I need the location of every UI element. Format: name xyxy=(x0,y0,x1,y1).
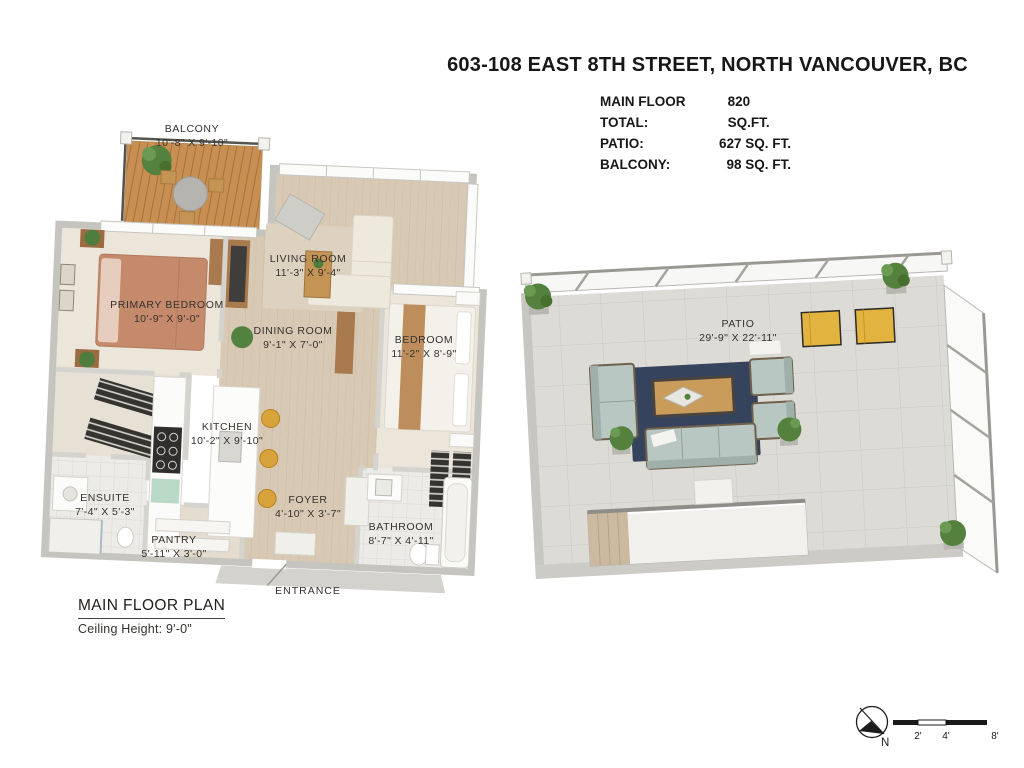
stat-label: MAIN FLOOR TOTAL: xyxy=(600,91,728,133)
balcony-chair xyxy=(208,179,224,193)
stair-cutout xyxy=(587,501,808,566)
room-label-kitchen: KITCHEN 10'-2" X 9'-10" xyxy=(191,420,263,448)
room-label-dining-room: DINING ROOM 9'-1" X 7'-0" xyxy=(254,324,333,352)
room-label-pantry: PANTRY 5'-11" X 3'-0" xyxy=(141,533,206,561)
entrance-door-opening xyxy=(252,559,286,569)
wall-art xyxy=(59,290,74,311)
yellow-chair xyxy=(801,311,841,347)
plan-title: MAIN FLOOR PLAN xyxy=(78,597,225,619)
plan-caption: MAIN FLOOR PLAN Ceiling Height: 9'-0" xyxy=(78,597,225,636)
bar-stool xyxy=(261,409,280,428)
scale-tick-2ft: 2' xyxy=(914,731,922,742)
scale-bar: 2' 4' 8' xyxy=(885,712,1010,744)
room-label-ensuite: ENSUITE 7'-4" X 5'-3" xyxy=(75,491,135,519)
patio-plan xyxy=(515,243,1007,602)
stat-row-main-floor: MAIN FLOOR TOTAL: 820 SQ.FT. xyxy=(600,91,791,133)
dishwasher xyxy=(151,478,180,503)
closet xyxy=(344,477,370,526)
page-title: 603-108 EAST 8TH STREET, NORTH VANCOUVER… xyxy=(447,54,968,77)
bar-stool xyxy=(258,489,277,508)
area-stats: MAIN FLOOR TOTAL: 820 SQ.FT. PATIO: 627 … xyxy=(600,91,791,175)
room-label-patio: PATIO 29'-9" X 22'-11" xyxy=(699,317,777,345)
sideboard xyxy=(335,311,356,374)
room-label-bedroom: BEDROOM 11'-2" X 8'-9" xyxy=(391,333,456,361)
stat-value: 820 SQ.FT. xyxy=(728,91,791,133)
bench xyxy=(275,532,316,556)
bar-stool xyxy=(259,449,278,468)
room-label-living-room: LIVING ROOM 11'-3" X 9'-4" xyxy=(270,252,347,280)
scale-tick-8ft: 8' xyxy=(991,731,999,742)
stat-label: BALCONY: xyxy=(600,154,670,175)
stat-value: 627 SQ. FT. xyxy=(719,133,791,154)
floor-plan-page: { "header": { "title": "603-108 EAST 8TH… xyxy=(0,0,1024,768)
stat-row-patio: PATIO: 627 SQ. FT. xyxy=(600,133,791,154)
stat-row-balcony: BALCONY: 98 SQ. FT. xyxy=(600,154,791,175)
nightstand xyxy=(450,433,475,447)
entrance-label: ENTRANCE xyxy=(275,585,341,597)
scale-tick-4ft: 4' xyxy=(942,731,950,742)
wall-art xyxy=(60,264,75,285)
stat-label: PATIO: xyxy=(600,133,644,154)
stat-value: 98 SQ. FT. xyxy=(726,154,791,175)
toilet xyxy=(117,527,134,548)
patio-plan-drawing xyxy=(515,243,1007,602)
nightstand xyxy=(456,291,481,305)
ottoman xyxy=(694,479,733,505)
room-label-foyer: FOYER 4'-10" X 3'-7" xyxy=(275,493,341,521)
yellow-chair xyxy=(855,308,895,344)
tv xyxy=(229,246,247,303)
dresser xyxy=(208,239,223,286)
room-label-primary-bedroom: PRIMARY BEDROOM 10'-9" X 9'-0" xyxy=(110,298,224,326)
ceiling-height: Ceiling Height: 9'-0" xyxy=(78,622,225,636)
balcony-chair xyxy=(179,211,195,225)
room-label-balcony: BALCONY 10'-8" X 9'-10" xyxy=(156,122,228,150)
balcony-chair xyxy=(161,171,177,185)
room-label-bathroom: BATHROOM 8'-7" X 4'-11" xyxy=(368,520,433,548)
shower xyxy=(49,518,102,554)
